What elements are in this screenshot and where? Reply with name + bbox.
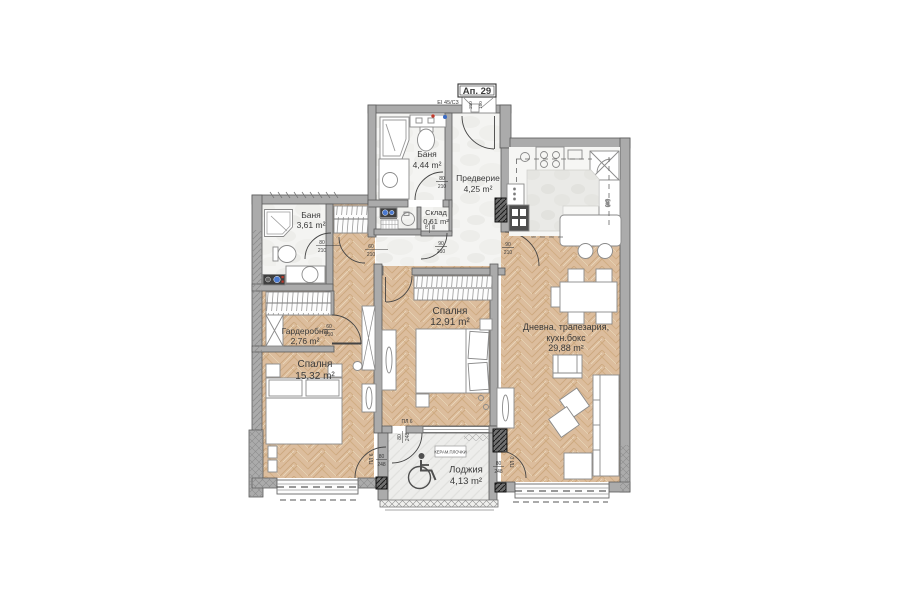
svg-text:Склад: Склад (425, 208, 447, 217)
svg-text:Баня: Баня (417, 149, 437, 159)
svg-text:80: 80 (496, 461, 502, 467)
svg-text:EI 45/C3: EI 45/C3 (437, 100, 458, 106)
svg-text:70: 70 (424, 224, 429, 230)
svg-text:КЕРАМ.ПЛОЧКИ: КЕРАМ.ПЛОЧКИ (434, 450, 466, 455)
svg-text:(40): (40) (605, 199, 610, 208)
svg-text:210: 210 (438, 184, 447, 190)
svg-text:Ап. 29: Ап. 29 (463, 86, 491, 97)
svg-text:85: 85 (431, 224, 436, 230)
svg-text:Спалня: Спалня (433, 306, 468, 317)
svg-text:210: 210 (504, 250, 513, 256)
svg-text:Дневна, трапезария,: Дневна, трапезария, (523, 322, 609, 332)
svg-text:Спалня: Спалня (298, 359, 333, 370)
svg-text:80: 80 (397, 434, 403, 440)
svg-text:80: 80 (439, 176, 445, 182)
svg-text:100: 100 (478, 101, 483, 109)
svg-text:248: 248 (494, 469, 503, 475)
svg-text:15,32 m²: 15,32 m² (295, 371, 335, 382)
svg-text:60: 60 (368, 244, 374, 250)
svg-text:210: 210 (367, 252, 376, 258)
svg-text:248: 248 (405, 433, 411, 442)
svg-text:3,61 m²: 3,61 m² (297, 220, 326, 230)
svg-text:210: 210 (325, 332, 334, 338)
svg-text:ПЛ 6: ПЛ 6 (369, 453, 375, 464)
svg-text:ПЛ 0: ПЛ 0 (510, 456, 516, 467)
svg-text:90: 90 (505, 242, 511, 248)
svg-text:248: 248 (377, 462, 386, 468)
svg-text:4,13 m²: 4,13 m² (450, 476, 482, 487)
svg-text:4,25 m²: 4,25 m² (464, 184, 493, 194)
svg-text:ПЛ 6: ПЛ 6 (401, 419, 412, 425)
svg-text:210: 210 (318, 248, 327, 254)
svg-text:Гардеробна: Гардеробна (282, 326, 329, 336)
svg-text:90: 90 (438, 241, 444, 247)
svg-text:210: 210 (468, 101, 473, 109)
svg-text:кухн.бокс: кухн.бокс (546, 333, 586, 343)
svg-text:80: 80 (319, 240, 325, 246)
svg-text:Лоджия: Лоджия (449, 465, 483, 476)
svg-text:210: 210 (437, 249, 446, 255)
svg-text:2,76 m²: 2,76 m² (291, 336, 320, 346)
svg-text:80: 80 (379, 454, 385, 460)
svg-text:4,44 m²: 4,44 m² (413, 160, 442, 170)
svg-text:60: 60 (326, 324, 332, 330)
svg-text:Баня: Баня (301, 210, 321, 220)
svg-text:Предверие: Предверие (456, 173, 500, 183)
svg-text:29,88 m²: 29,88 m² (548, 343, 584, 353)
svg-text:12,91 m²: 12,91 m² (430, 317, 470, 328)
